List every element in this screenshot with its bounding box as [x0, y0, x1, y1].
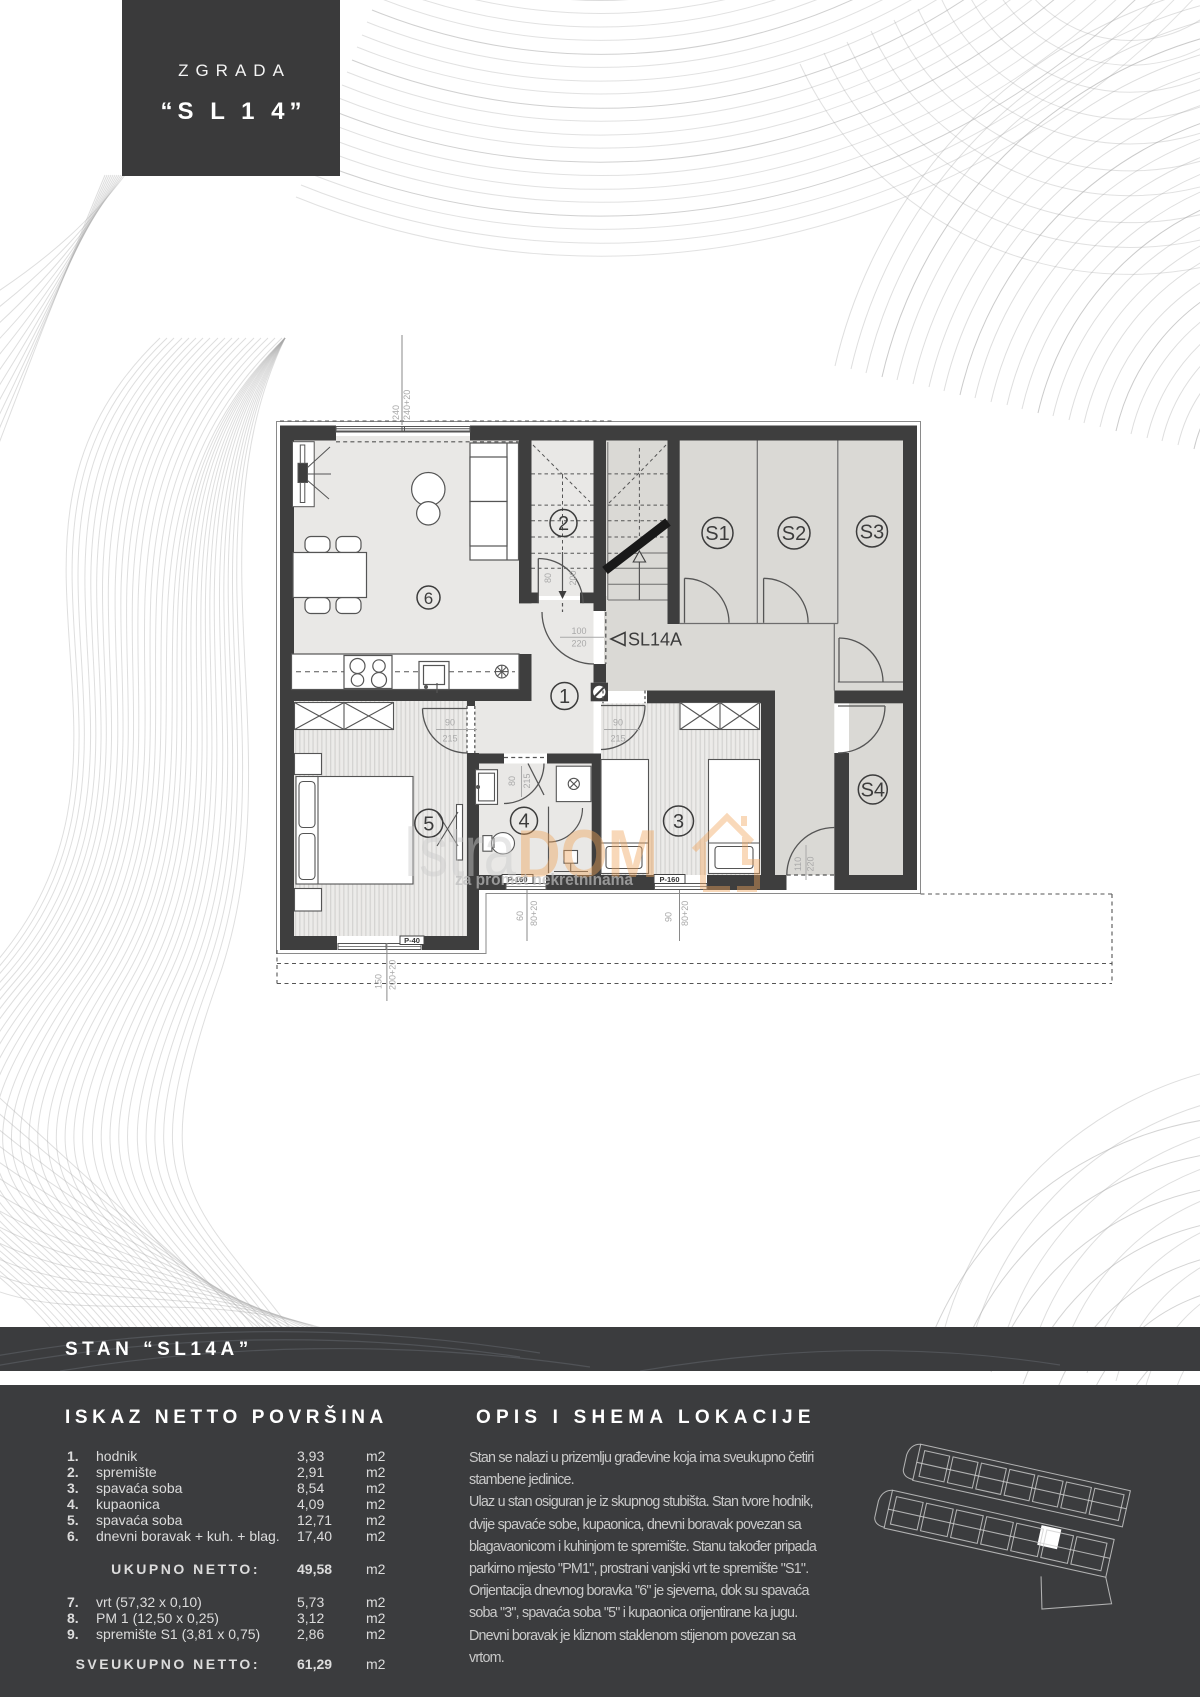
svg-text:SL14A: SL14A — [628, 630, 682, 650]
svg-text:215: 215 — [442, 734, 457, 744]
svg-text:80+20: 80+20 — [529, 901, 539, 926]
svg-text:150: 150 — [374, 974, 384, 989]
svg-text:80: 80 — [507, 776, 517, 786]
svg-text:240+20: 240+20 — [402, 390, 412, 420]
svg-text:3: 3 — [673, 811, 684, 833]
svg-text:220: 220 — [571, 639, 586, 649]
svg-text:80+20: 80+20 — [680, 901, 690, 926]
svg-text:S4: S4 — [861, 780, 885, 802]
svg-text:1: 1 — [559, 686, 570, 708]
svg-text:220: 220 — [806, 856, 816, 871]
svg-text:90: 90 — [445, 718, 455, 728]
svg-text:za promet nekretninama: za promet nekretninama — [455, 871, 634, 889]
svg-text:90: 90 — [664, 912, 674, 922]
svg-text:6: 6 — [424, 589, 433, 608]
svg-text:60: 60 — [515, 911, 525, 921]
svg-text:200+20: 200+20 — [388, 960, 398, 990]
svg-text:S1: S1 — [705, 523, 729, 545]
svg-text:240: 240 — [391, 405, 401, 420]
svg-text:S2: S2 — [782, 523, 806, 545]
svg-text:215: 215 — [522, 773, 532, 788]
svg-text:100: 100 — [571, 626, 586, 636]
svg-text:110: 110 — [793, 857, 803, 871]
svg-text:2: 2 — [558, 513, 569, 535]
svg-text:80: 80 — [543, 573, 553, 583]
svg-text:200: 200 — [568, 570, 578, 585]
svg-text:215: 215 — [610, 734, 625, 744]
svg-text:90: 90 — [613, 718, 623, 728]
svg-text:P-160: P-160 — [659, 875, 679, 884]
svg-text:S3: S3 — [860, 522, 884, 544]
svg-text:P-40: P-40 — [404, 936, 420, 945]
